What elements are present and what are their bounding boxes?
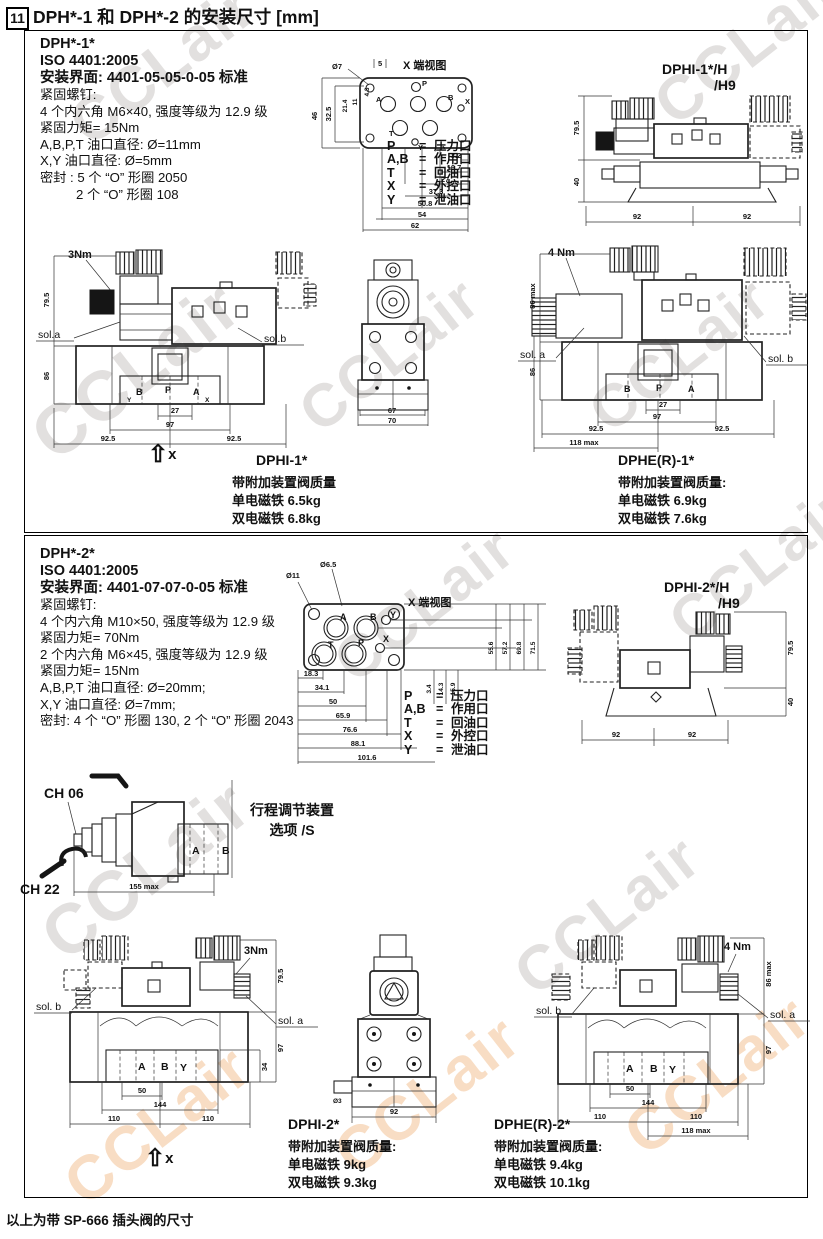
- legend-row: Y=泄油口: [404, 744, 489, 757]
- dim-label: 110: [108, 1114, 120, 1123]
- weight-line: 单电磁铁 6.9kg: [618, 492, 726, 510]
- s1-spec-line: X,Y 油口直径: Ø=5mm: [40, 153, 268, 170]
- s2-front-drawing: 3Nm sol. b sol. a A B Y 79.5 97 34 50 14…: [24, 926, 326, 1156]
- legend-row: Y=泄油口: [387, 194, 472, 207]
- s2-dphi-label: DPHI-2*: [288, 1116, 339, 1132]
- dim-label: 34.1: [315, 683, 330, 692]
- s1-dphi-weights: 带附加装置阀质量 单电磁铁 6.5kg 双电磁铁 6.8kg: [232, 474, 336, 528]
- dimensions: 86 max 86 27 97 92.5 92.5 118 max: [528, 254, 774, 452]
- s1-spec-line: 密封 : 5 个 “O” 形圈 2050: [40, 170, 268, 187]
- dim-label: 110: [594, 1112, 606, 1121]
- s1-dphi-label: DPHI-1*: [256, 452, 307, 468]
- legend-key: A,B: [387, 153, 419, 166]
- dim-label: 97: [764, 1046, 773, 1054]
- x-axis-label: x: [165, 1150, 173, 1167]
- legend-eq: =: [436, 744, 451, 757]
- hole-dia-label: Ø7: [332, 62, 342, 71]
- legend-eq: =: [419, 180, 434, 193]
- port-b-label: B: [650, 1063, 658, 1075]
- legend-eq: =: [419, 194, 434, 207]
- port-b-label: B: [370, 612, 377, 622]
- dim-label: 101.6: [358, 753, 377, 762]
- sol-a-label: sol. a: [278, 1015, 303, 1027]
- dim-label: 55.6: [488, 641, 495, 654]
- dim-label: 32.5: [324, 107, 333, 122]
- dimensions: 79.5 86 27 97 92.5 92.5: [42, 256, 286, 448]
- valve-front-view: [64, 936, 250, 1082]
- dimensions: 67 70: [358, 406, 428, 426]
- dim-label: 92.5: [101, 434, 116, 443]
- dim-label: 46: [310, 112, 319, 120]
- s2-iso: ISO 4401:2005: [40, 563, 294, 580]
- legend-key: Y: [387, 194, 419, 207]
- sol-a-label: sol.a: [38, 329, 60, 341]
- sol-b-label: sol. b: [536, 1005, 561, 1017]
- s2-dphih-drawing: DPHI-2*/H /H9 79.5 40 92 92: [556, 576, 808, 772]
- up-arrow-icon: ⇧: [148, 441, 168, 468]
- adjuster-body: [74, 780, 232, 882]
- port-y-label: Y: [669, 1064, 676, 1076]
- port-a-label: A: [376, 95, 382, 104]
- port-a-label: A: [138, 1061, 146, 1073]
- footer-note: 以上为带 SP-666 插头阀的尺寸: [6, 1209, 194, 1229]
- torque-label: 4 Nm: [548, 247, 575, 259]
- drawing-title: /H9: [714, 77, 736, 93]
- weight-line: 单电磁铁 6.5kg: [232, 492, 336, 510]
- sol-a-label: sol. a: [770, 1009, 795, 1021]
- port-a-label: A: [626, 1063, 634, 1075]
- dim-label: 62: [411, 221, 419, 230]
- s1-side-drawing: 67 70: [332, 258, 454, 428]
- s2-option-note: 行程调节装置 选项 /S: [240, 800, 344, 840]
- sol-b-label: sol. b: [36, 1001, 61, 1013]
- section-number: 11: [6, 7, 29, 30]
- s1-spec-line: A,B,P,T 油口直径: Ø=11mm: [40, 137, 268, 154]
- s2-spec-line: 密封: 4 个 “O” 形圈 130, 2 个 “O” 形圈 2043: [40, 713, 294, 730]
- up-arrow-icon: ⇧: [145, 1145, 165, 1172]
- dim-label: 86: [528, 368, 537, 376]
- port-t-label: T: [389, 129, 394, 138]
- dim-label: 92: [390, 1107, 398, 1116]
- legend-val: 外控口: [434, 180, 472, 193]
- port-y-label: Y: [390, 610, 396, 620]
- sol-b-label: sol. b: [768, 353, 793, 365]
- legend-val: 作用口: [451, 703, 489, 716]
- dim-label: 86: [42, 372, 51, 380]
- s2-dphi-weights: 带附加装置阀质量: 单电磁铁 9kg 双电磁铁 9.3kg: [288, 1138, 396, 1192]
- s2-spec-line: 紧固螺钉:: [40, 597, 294, 614]
- valve-front-view: [532, 246, 806, 400]
- torque-label: 4 Nm: [724, 941, 751, 953]
- dim-label: 50: [138, 1086, 146, 1095]
- valve-front-view: [76, 250, 316, 404]
- dim-label: 88.1: [351, 739, 366, 748]
- port-b-label: B: [448, 93, 454, 102]
- catalog-page: CCLair CCLair CCLair CCLair CCLair CCLai…: [0, 0, 823, 1239]
- legend-key: P: [387, 140, 419, 153]
- legend-eq: =: [436, 730, 451, 743]
- valve-top-assembly: [358, 260, 428, 410]
- port-y-label: Y: [127, 397, 132, 404]
- dim-label: 79.5: [786, 641, 795, 656]
- dim-label: 92: [688, 730, 696, 739]
- s1-dphe-drawing: 4 Nm sol. a sol. b B P: [514, 242, 810, 460]
- dim-label: 97: [653, 412, 661, 421]
- left-dimensions: 46 32.5 21.4 11 4.3: [310, 78, 371, 148]
- dim-label: 110: [202, 1114, 214, 1123]
- port-p-label: P: [358, 638, 364, 648]
- port-x-label: X: [465, 97, 470, 106]
- dim-label: 57.2: [502, 641, 509, 654]
- s1-model: DPH*-1*: [40, 36, 268, 53]
- sol-b-label: sol.b: [264, 333, 286, 345]
- dim-label: 92.5: [715, 424, 730, 433]
- valve-front-view: [552, 936, 738, 1084]
- dim-label: 79.5: [42, 293, 51, 308]
- dim-label: 50: [626, 1084, 634, 1093]
- dim-label: 79.5: [572, 121, 581, 136]
- s2-spec-line: 紧固力矩= 70Nm: [40, 630, 294, 647]
- dim-label: 54: [418, 210, 427, 219]
- drawing-title: /H9: [718, 595, 740, 611]
- legend-row: A,B=作用口: [404, 703, 489, 716]
- drawing-title: DPHI-1*/H: [662, 61, 727, 77]
- dim-label: 50: [329, 697, 337, 706]
- port-a-label: A: [340, 612, 347, 622]
- s1-iso: ISO 4401:2005: [40, 53, 268, 70]
- legend-key: Y: [404, 744, 436, 757]
- drawing-title: DPHI-2*/H: [664, 579, 729, 595]
- s2-spec-block: DPH*-2* ISO 4401:2005 安装界面: 4401-07-07-0…: [40, 546, 294, 730]
- dim-label: 34: [260, 1062, 269, 1071]
- dim-label: 110: [690, 1112, 702, 1121]
- legend-key: T: [404, 717, 436, 730]
- dim-label: 92.5: [589, 424, 604, 433]
- port-p-label: P: [165, 385, 171, 395]
- page-title: DPH*-1 和 DPH*-2 的安装尺寸 [mm]: [33, 4, 319, 29]
- s2-end-view-label: X 端视图: [408, 595, 451, 609]
- dim-label: 118 max: [569, 438, 599, 447]
- dim-label: 70: [388, 416, 396, 425]
- x-direction-arrow: ⇧x: [148, 440, 176, 469]
- dim-label: 27: [171, 406, 179, 415]
- legend-val: 作用口: [434, 153, 472, 166]
- dim-label: 21.4: [342, 99, 349, 112]
- s2-spec-line: 2 个内六角 M6×45, 强度等级为 12.9 级: [40, 647, 294, 664]
- dim-label: 118 max: [681, 1126, 711, 1135]
- s2-mount: 安装界面: 4401-07-07-0-05 标准: [40, 580, 294, 597]
- s2-spec-line: 4 个内六角 M10×50, 强度等级为 12.9 级: [40, 614, 294, 631]
- hex-key-icon: [92, 776, 126, 786]
- port-b-label: B: [624, 384, 631, 394]
- legend-val: 外控口: [451, 730, 489, 743]
- valve-top-assembly: [334, 935, 436, 1107]
- x-direction-arrow: ⇧x: [145, 1144, 173, 1173]
- mount-face-body: A B Y T P X: [304, 604, 404, 670]
- s2-model: DPH*-2*: [40, 546, 294, 563]
- legend-row: X=外控口: [404, 730, 489, 743]
- dim-label: 92: [633, 212, 641, 221]
- weight-line: 带附加装置阀质量:: [288, 1138, 396, 1156]
- s2-stroke-adjuster-drawing: CH 06 CH 22 A B 155 max: [18, 766, 236, 908]
- s2-side-drawing: Ø3 92: [330, 931, 465, 1127]
- legend-key: X: [387, 180, 419, 193]
- x-axis-label: x: [168, 446, 176, 463]
- s1-spec-block: DPH*-1* ISO 4401:2005 安装界面: 4401-05-05-0…: [40, 36, 268, 203]
- port-b-label: B: [161, 1061, 169, 1073]
- dim-label: 79.5: [276, 969, 285, 984]
- s1-spec-line: 2 个 “O” 形圈 108: [76, 187, 268, 204]
- dim-label: 40: [572, 178, 581, 186]
- weight-line: 双电磁铁 10.1kg: [494, 1174, 602, 1192]
- dim-label: 86 max: [764, 960, 773, 986]
- dim-label: 67: [388, 406, 396, 415]
- legend-eq: =: [419, 140, 434, 153]
- dimensions: 86 max 97 50 144 110 110 118 max: [558, 938, 773, 1140]
- s1-dphe-weights: 带附加装置阀质量: 单电磁铁 6.9kg 双电磁铁 7.6kg: [618, 474, 726, 528]
- weight-line: 带附加装置阀质量: [232, 474, 336, 492]
- s1-mount: 安装界面: 4401-05-05-0-05 标准: [40, 70, 268, 87]
- legend-eq: =: [436, 690, 451, 703]
- dim-label: 5: [378, 59, 382, 68]
- s2-dphe-label: DPHE(R)-2*: [494, 1116, 570, 1132]
- port-x-label: X: [205, 397, 210, 404]
- ch06-label: CH 06: [44, 785, 84, 801]
- dim-label: 97: [166, 420, 174, 429]
- valve-side-view: [596, 96, 802, 202]
- hole-dia-label: Ø11: [286, 571, 300, 580]
- dim-label: 11: [352, 98, 359, 105]
- dim-label: 76.6: [343, 725, 358, 734]
- port-p-label: P: [422, 79, 427, 88]
- legend-row: A,B=作用口: [387, 153, 472, 166]
- option-line: 选项 /S: [240, 820, 344, 840]
- legend-row: X=外控口: [387, 180, 472, 193]
- dim-label: 18.3: [304, 669, 319, 678]
- legend-key: P: [404, 690, 436, 703]
- port-a-label: A: [192, 845, 200, 857]
- s1-dphih-drawing: DPHI-1*/H /H9 79.5 40: [552, 56, 808, 248]
- s1-spec-line: 紧固力矩= 15Nm: [40, 120, 268, 137]
- port-a-label: A: [688, 384, 695, 394]
- sol-a-label: sol. a: [520, 349, 545, 361]
- dimensions: 92: [352, 1107, 436, 1123]
- dim-label: 27: [659, 400, 667, 409]
- legend-key: X: [404, 730, 436, 743]
- s1-port-legend: P=压力口 A,B=作用口 T=回油口 X=外控口 Y=泄油口: [387, 140, 472, 207]
- dim-label: 69.8: [516, 641, 523, 654]
- weight-line: 带附加装置阀质量:: [618, 474, 726, 492]
- port-p-label: P: [656, 383, 662, 393]
- port-b-label: B: [136, 387, 143, 397]
- s2-spec-line: X,Y 油口直径: Ø=7mm;: [40, 697, 294, 714]
- dim-label: 144: [642, 1098, 655, 1107]
- legend-eq: =: [419, 153, 434, 166]
- weight-line: 单电磁铁 9.4kg: [494, 1156, 602, 1174]
- weight-line: 单电磁铁 9kg: [288, 1156, 396, 1174]
- legend-eq: =: [419, 167, 434, 180]
- s2-port-legend: P=压力口 A,B=作用口 T=回油口 X=外控口 Y=泄油口: [404, 690, 489, 757]
- legend-key: A,B: [404, 703, 436, 716]
- hole-dia-label: Ø6.5: [320, 560, 336, 569]
- s1-dphe-label: DPHE(R)-1*: [618, 452, 694, 468]
- dim-label: 92.5: [227, 434, 242, 443]
- torque-label: 3Nm: [68, 249, 92, 261]
- weight-line: 双电磁铁 6.8kg: [232, 510, 336, 528]
- option-line: 行程调节装置: [240, 800, 344, 820]
- ch22-label: CH 22: [20, 881, 60, 897]
- s1-spec-line: 4 个内六角 M6×40, 强度等级为 12.9 级: [40, 104, 268, 121]
- legend-val: 泄油口: [451, 744, 489, 757]
- dim-label: 4.3: [364, 87, 371, 96]
- dim-label: 65.9: [336, 711, 351, 720]
- torque-label: 3Nm: [244, 945, 268, 957]
- s1-spec-line: 紧固螺钉:: [40, 87, 268, 104]
- s1-end-view-label: X 端视图: [403, 58, 446, 72]
- weight-line: 带附加装置阀质量:: [494, 1138, 602, 1156]
- legend-eq: =: [436, 717, 451, 730]
- dim-label: 92: [612, 730, 620, 739]
- legend-eq: =: [436, 703, 451, 716]
- legend-val: 泄油口: [434, 194, 472, 207]
- dim-label: 155 max: [129, 882, 159, 891]
- dim-label: 97: [276, 1044, 285, 1052]
- dim-label: 86 max: [528, 282, 537, 308]
- port-b-label: B: [222, 845, 230, 857]
- valve-side-view: [568, 606, 742, 716]
- dim-label: 71.5: [530, 641, 537, 654]
- weight-line: 双电磁铁 7.6kg: [618, 510, 726, 528]
- hole-dia-label: Ø3: [333, 1098, 342, 1105]
- s2-spec-line: 紧固力矩= 15Nm: [40, 663, 294, 680]
- legend-key: T: [387, 167, 419, 180]
- port-a-label: A: [193, 387, 200, 397]
- dim-label: 92: [743, 212, 751, 221]
- port-t-label: T: [328, 640, 334, 650]
- port-y-label: Y: [180, 1062, 187, 1074]
- dim-label: 144: [154, 1100, 167, 1109]
- s2-dphe-weights: 带附加装置阀质量: 单电磁铁 9.4kg 双电磁铁 10.1kg: [494, 1138, 602, 1192]
- port-x-label: X: [383, 634, 389, 644]
- weight-line: 双电磁铁 9.3kg: [288, 1174, 396, 1192]
- s2-spec-line: A,B,P,T 油口直径: Ø=20mm;: [40, 680, 294, 697]
- dim-label: 40: [786, 698, 795, 706]
